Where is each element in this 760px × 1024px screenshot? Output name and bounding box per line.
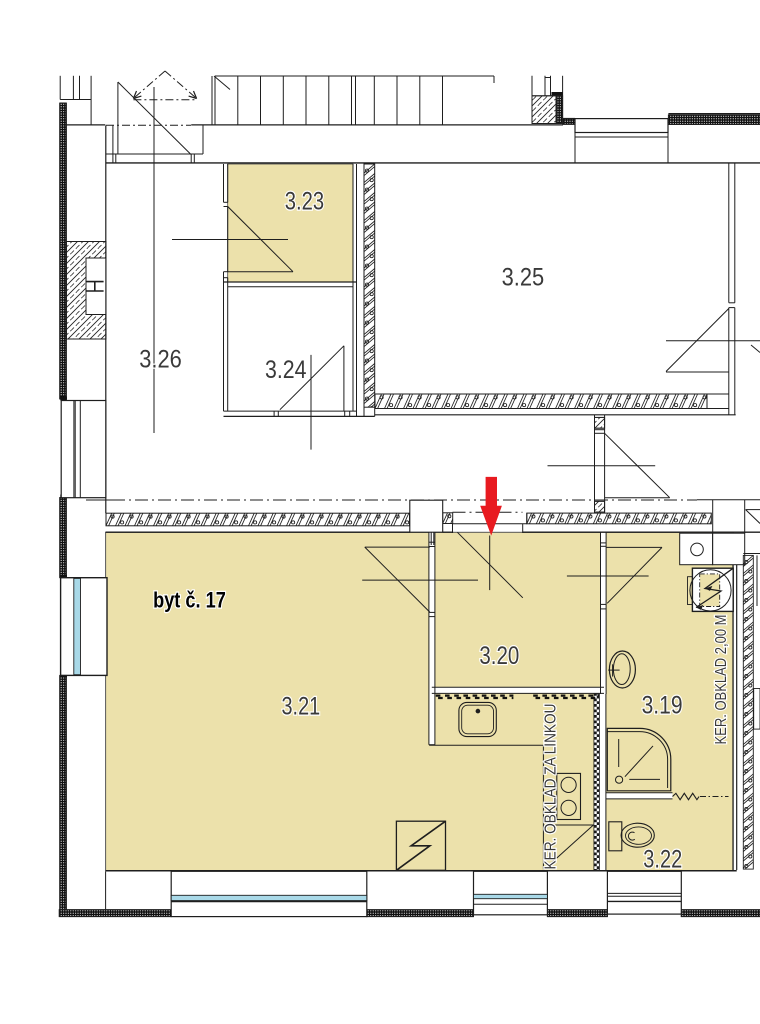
svg-text:3.24: 3.24: [265, 356, 307, 384]
svg-text:3.23: 3.23: [285, 188, 324, 216]
svg-text:3.20: 3.20: [479, 642, 519, 670]
svg-text:byt č. 17: byt č. 17: [153, 587, 226, 612]
svg-text:3.19: 3.19: [642, 692, 683, 720]
svg-text:KER. OBKLAD 2,00 M: KER. OBKLAD 2,00 M: [713, 615, 730, 745]
svg-text:KER. OBKLAD ZA LINKOU: KER. OBKLAD ZA LINKOU: [542, 704, 559, 870]
svg-text:3.25: 3.25: [502, 264, 545, 292]
svg-text:3.26: 3.26: [139, 345, 182, 373]
svg-text:3.21: 3.21: [282, 693, 321, 721]
svg-text:3.22: 3.22: [643, 845, 682, 873]
